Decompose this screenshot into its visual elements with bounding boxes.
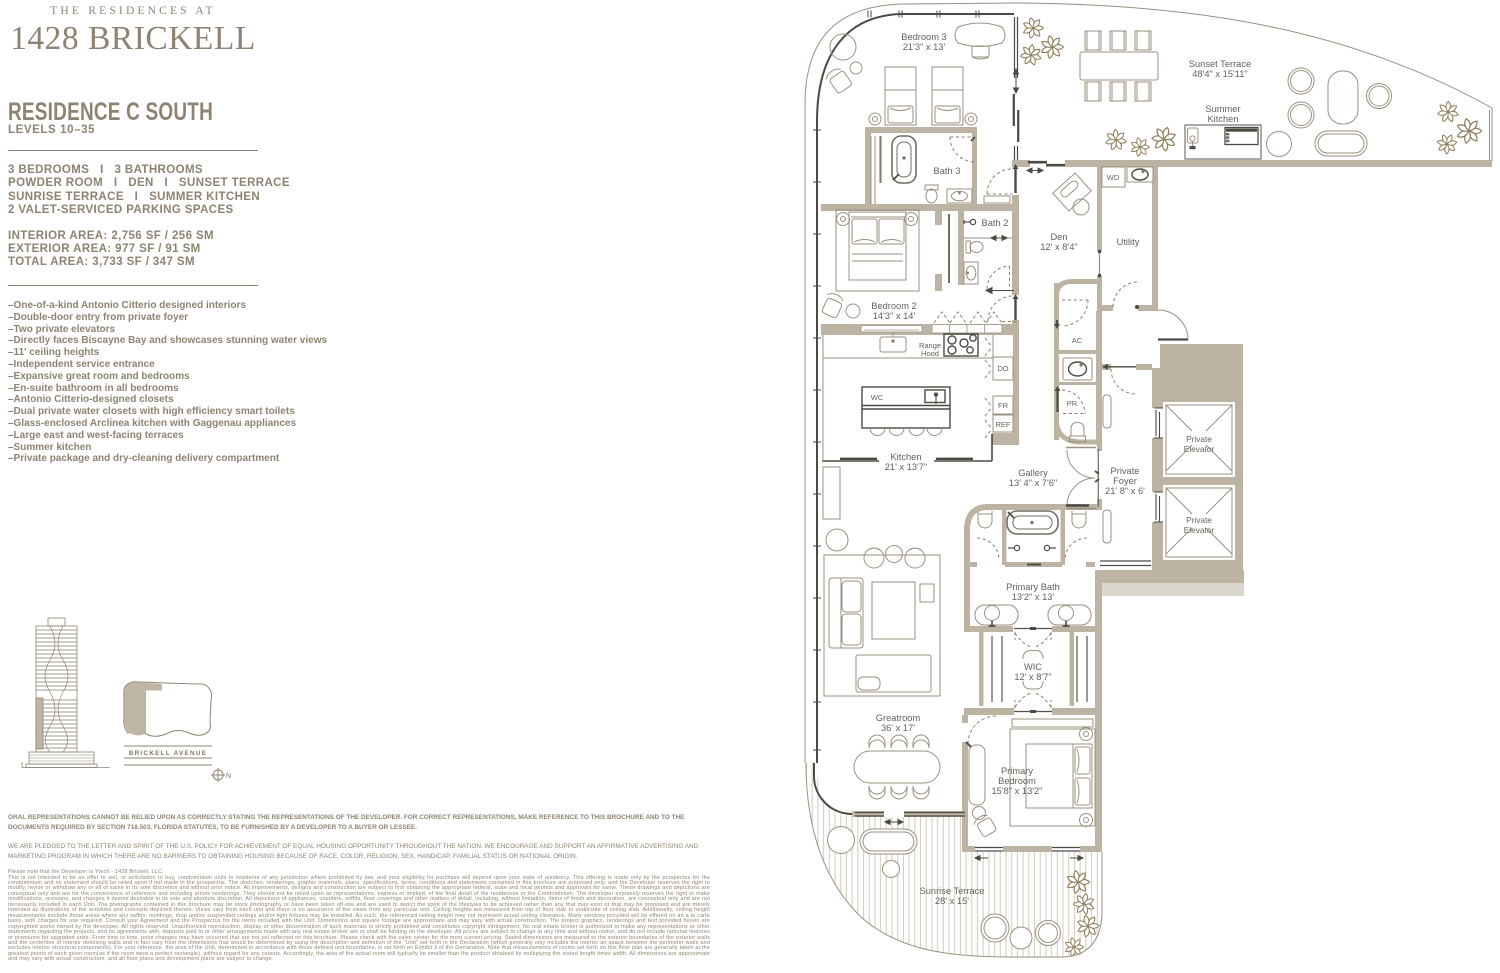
svg-text:Sunrise Terrace: Sunrise Terrace [920, 886, 985, 896]
svg-text:21'3" x 13': 21'3" x 13' [903, 42, 946, 52]
svg-text:Private: Private [1111, 466, 1140, 476]
svg-text:36' x 17': 36' x 17' [881, 723, 915, 733]
svg-text:Bath 3: Bath 3 [934, 166, 961, 176]
svg-text:Private: Private [1186, 434, 1212, 444]
svg-text:Bedroom: Bedroom [998, 776, 1036, 786]
svg-text:Greatroom: Greatroom [876, 713, 921, 723]
svg-text:Kitchen: Kitchen [1207, 114, 1238, 124]
svg-text:WIC: WIC [1024, 662, 1042, 672]
svg-text:FR: FR [998, 401, 1009, 410]
svg-text:DO: DO [997, 364, 1008, 373]
svg-text:Summer: Summer [1205, 104, 1240, 114]
svg-text:WD: WD [1107, 173, 1120, 182]
svg-text:Elevator: Elevator [1184, 444, 1215, 454]
svg-text:Gallery: Gallery [1018, 468, 1048, 478]
svg-text:15'8" x 13'2": 15'8" x 13'2" [992, 786, 1043, 796]
svg-text:14'3" x 14': 14'3" x 14' [873, 311, 916, 321]
svg-text:13' 4" x 7'6": 13' 4" x 7'6" [1009, 478, 1057, 488]
svg-text:13'2" x 13': 13'2" x 13' [1012, 592, 1055, 602]
svg-text:12' x 8'7": 12' x 8'7" [1014, 672, 1051, 682]
svg-text:Primary Bath: Primary Bath [1006, 582, 1060, 592]
svg-text:PR: PR [1067, 399, 1078, 408]
svg-text:Bedroom 2: Bedroom 2 [871, 301, 916, 311]
svg-text:Elevator: Elevator [1184, 525, 1215, 535]
svg-text:28' x 15': 28' x 15' [935, 896, 969, 906]
svg-text:AC: AC [1072, 336, 1083, 345]
svg-text:Primary: Primary [1001, 766, 1033, 776]
svg-text:Foyer: Foyer [1113, 476, 1137, 486]
svg-text:Bedroom 3: Bedroom 3 [901, 32, 946, 42]
svg-text:Den: Den [1050, 232, 1067, 242]
svg-text:Hood: Hood [921, 349, 939, 358]
svg-text:Sunset Terrace: Sunset Terrace [1189, 59, 1251, 69]
svg-text:48'4" x 15'11": 48'4" x 15'11" [1192, 69, 1247, 79]
svg-text:12' x 8'4": 12' x 8'4" [1040, 242, 1077, 252]
svg-text:Kitchen: Kitchen [890, 452, 921, 462]
svg-text:Utility: Utility [1117, 237, 1140, 247]
svg-text:WC: WC [871, 393, 884, 402]
svg-text:21' 8" x 6': 21' 8" x 6' [1105, 486, 1145, 496]
svg-text:Private: Private [1186, 515, 1212, 525]
svg-text:BRICKELL AVENUE: BRICKELL AVENUE [129, 750, 208, 757]
svg-text:REF: REF [996, 420, 1011, 429]
svg-text:N: N [226, 773, 231, 780]
svg-text:21' x 13'7": 21' x 13'7" [885, 462, 928, 472]
svg-text:Bath 2: Bath 2 [982, 218, 1009, 228]
